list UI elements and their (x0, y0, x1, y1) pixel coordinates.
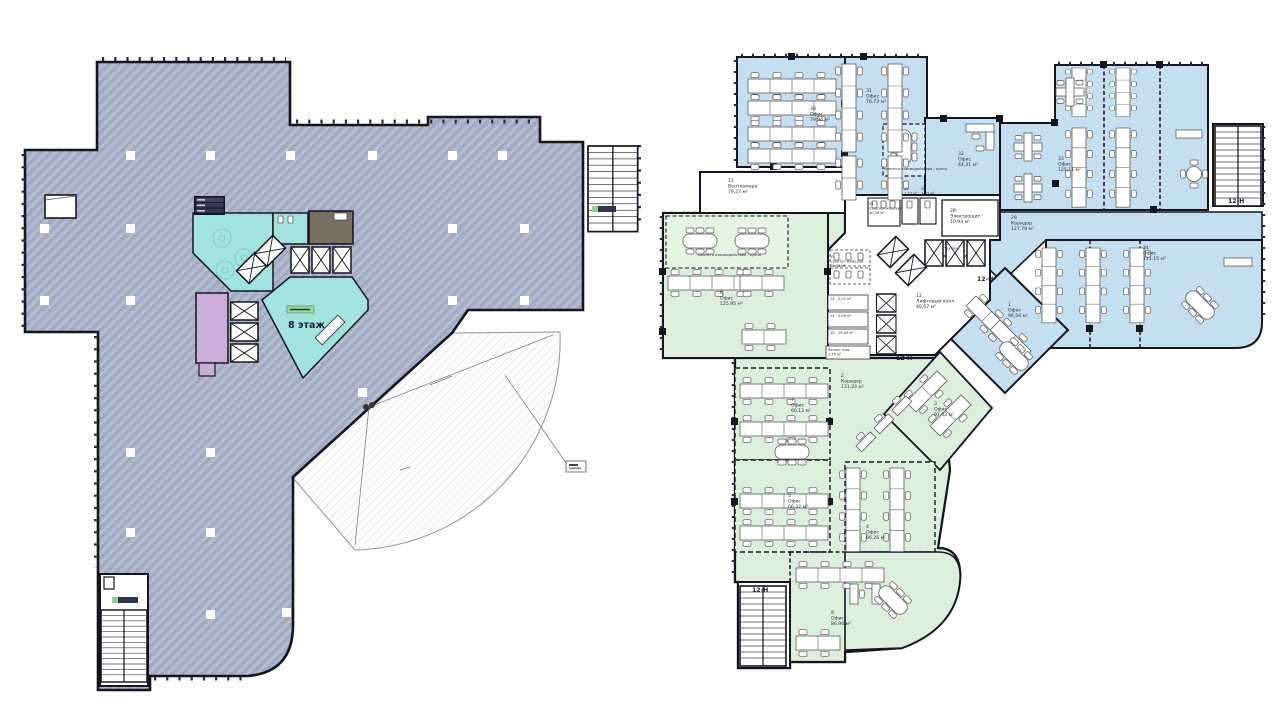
svg-text:1,73 м²: 1,73 м² (921, 191, 935, 195)
svg-text:10,45 м²: 10,45 м² (838, 331, 854, 335)
floor-label-text: 8 этаж (288, 320, 325, 331)
svg-text:Офис: Офис (831, 616, 845, 622)
meeting-label-blue: комната взаимодействия / кухня (884, 167, 947, 171)
svg-text:4: 4 (866, 524, 869, 530)
svg-text:Тех.пом.: Тех.пом. (943, 246, 960, 250)
svg-text:66,26 м²: 66,26 м² (866, 535, 886, 541)
left-floor-plan: 8 этаж (24, 59, 640, 690)
svg-text:31: 31 (866, 88, 872, 94)
svg-text:2: 2 (841, 373, 844, 379)
svg-text:125,11 м²: 125,11 м² (1058, 167, 1081, 173)
room-11-vent (700, 172, 845, 213)
plans-svg: 8 этаж (0, 0, 1280, 720)
elevators-core-top (925, 240, 985, 266)
elevators-left (231, 302, 258, 362)
svg-text:76,73 м²: 76,73 м² (866, 99, 886, 105)
svg-text:96,56 м²: 96,56 м² (1008, 313, 1028, 319)
svg-text:8: 8 (831, 610, 834, 616)
svg-text:13: 13 (830, 314, 835, 318)
svg-text:Офис: Офис (866, 94, 880, 100)
svg-text:24: 24 (869, 202, 874, 206)
svg-text:2,09 м²: 2,09 м² (838, 314, 852, 318)
svg-text:Офис: Офис (720, 296, 734, 302)
stairs-right-wing (1215, 126, 1261, 206)
purple-room (196, 293, 228, 376)
svg-text:11: 11 (728, 178, 734, 184)
svg-text:28: 28 (950, 208, 956, 214)
floor-plans-canvas: { "left_plan": { "floor_label": "8 этаж"… (0, 0, 1280, 720)
svg-text:Офис: Офис (958, 157, 972, 163)
svg-text:Электрощит.: Электрощит. (950, 214, 982, 220)
svg-text:Офис: Офис (810, 112, 824, 118)
stairs-leg-bottom (738, 582, 790, 668)
svg-text:26: 26 (921, 187, 926, 191)
svg-text:3: 3 (934, 401, 937, 407)
svg-text:32: 32 (958, 151, 964, 157)
svg-text:Офис: Офис (1058, 162, 1072, 168)
svg-text:1,79 м²: 1,79 м² (828, 352, 842, 356)
svg-text:10,49 м²: 10,49 м² (830, 264, 846, 268)
svg-text:60,12 м²: 60,12 м² (791, 408, 811, 414)
svg-text:10,94 м²: 10,94 м² (950, 219, 970, 225)
svg-text:111,15 м²: 111,15 м² (1143, 256, 1166, 262)
label-room-10: 1010,45 м² (830, 331, 854, 335)
block-label-3: 12-Н (896, 355, 912, 362)
svg-text:44,31 м²: 44,31 м² (958, 162, 978, 168)
svg-text:1: 1 (1008, 302, 1011, 308)
svg-text:Офис: Офис (788, 499, 802, 505)
svg-text:79,96 м²: 79,96 м² (810, 117, 830, 123)
svg-text:30: 30 (810, 106, 816, 112)
svg-text:Коридор: Коридор (841, 379, 862, 385)
svg-text:7: 7 (791, 397, 794, 403)
elevators-core-left (877, 294, 897, 354)
small-room (45, 195, 76, 218)
svg-text:125,95 м²: 125,95 м² (720, 301, 743, 307)
svg-text:Офис: Офис (1008, 308, 1022, 314)
svg-text:131,24 м²: 131,24 м² (841, 384, 864, 390)
svg-text:Лифтовый холл: Лифтовый холл (916, 298, 954, 305)
block-label-1: 12-Н (1228, 198, 1244, 205)
svg-text:33: 33 (1058, 156, 1064, 162)
svg-text:Офис: Офис (791, 403, 805, 409)
svg-text:27: 27 (944, 242, 949, 246)
svg-text:97,02 м²: 97,02 м² (934, 412, 954, 418)
svg-text:10,16 м²: 10,16 м² (869, 211, 885, 215)
meeting-room-green (666, 216, 788, 268)
svg-text:Офис: Офис (866, 530, 880, 536)
elevators-top (291, 247, 351, 273)
svg-text:49,67 м²: 49,67 м² (916, 304, 936, 310)
svg-text:Санузел женский: Санузел женский (869, 206, 903, 210)
svg-text:Санузел мужской: Санузел мужской (830, 259, 864, 263)
stairs-top-right (588, 146, 638, 232)
svg-text:127,79 м²: 127,79 м² (1011, 226, 1034, 232)
svg-text:29: 29 (1011, 215, 1017, 221)
block-label-4: 12-Н (752, 587, 768, 594)
label-room-13: 132,09 м² (830, 314, 852, 318)
legend-stamp (194, 196, 225, 215)
svg-text:Вспом. пом.: Вспом. пом. (828, 348, 850, 352)
svg-text:12: 12 (916, 293, 922, 299)
svg-text:5: 5 (788, 493, 791, 499)
svg-text:1,73 м²: 1,73 м² (904, 191, 918, 195)
svg-text:34: 34 (1143, 245, 1149, 251)
svg-text:10: 10 (830, 331, 835, 335)
svg-text:86,96 м²: 86,96 м² (831, 621, 851, 627)
svg-text:25: 25 (904, 187, 909, 191)
svg-text:6: 6 (720, 290, 723, 296)
svg-text:Венткамера: Венткамера (728, 184, 757, 190)
svg-text:15: 15 (830, 255, 835, 259)
meeting-label-green: комната взаимодействия / кухня (698, 253, 761, 257)
svg-text:2,01 м²: 2,01 м² (838, 297, 852, 301)
label-room-14: 142,01 м² (830, 297, 852, 301)
right-floor-plan: 30Офис79,96 м² 31Офис76,73 м² 32Офис44,3… (659, 53, 1264, 668)
svg-text:Офис: Офис (1143, 251, 1157, 257)
block-label-2: 12-Н (977, 276, 993, 283)
stairs-bottom-left (100, 574, 148, 686)
svg-text:14: 14 (830, 297, 835, 301)
svg-text:79,27 м²: 79,27 м² (728, 189, 748, 195)
svg-text:66,32 м²: 66,32 м² (788, 504, 808, 510)
svg-text:Коридор: Коридор (1011, 221, 1032, 227)
svg-text:Офис: Офис (934, 407, 948, 413)
